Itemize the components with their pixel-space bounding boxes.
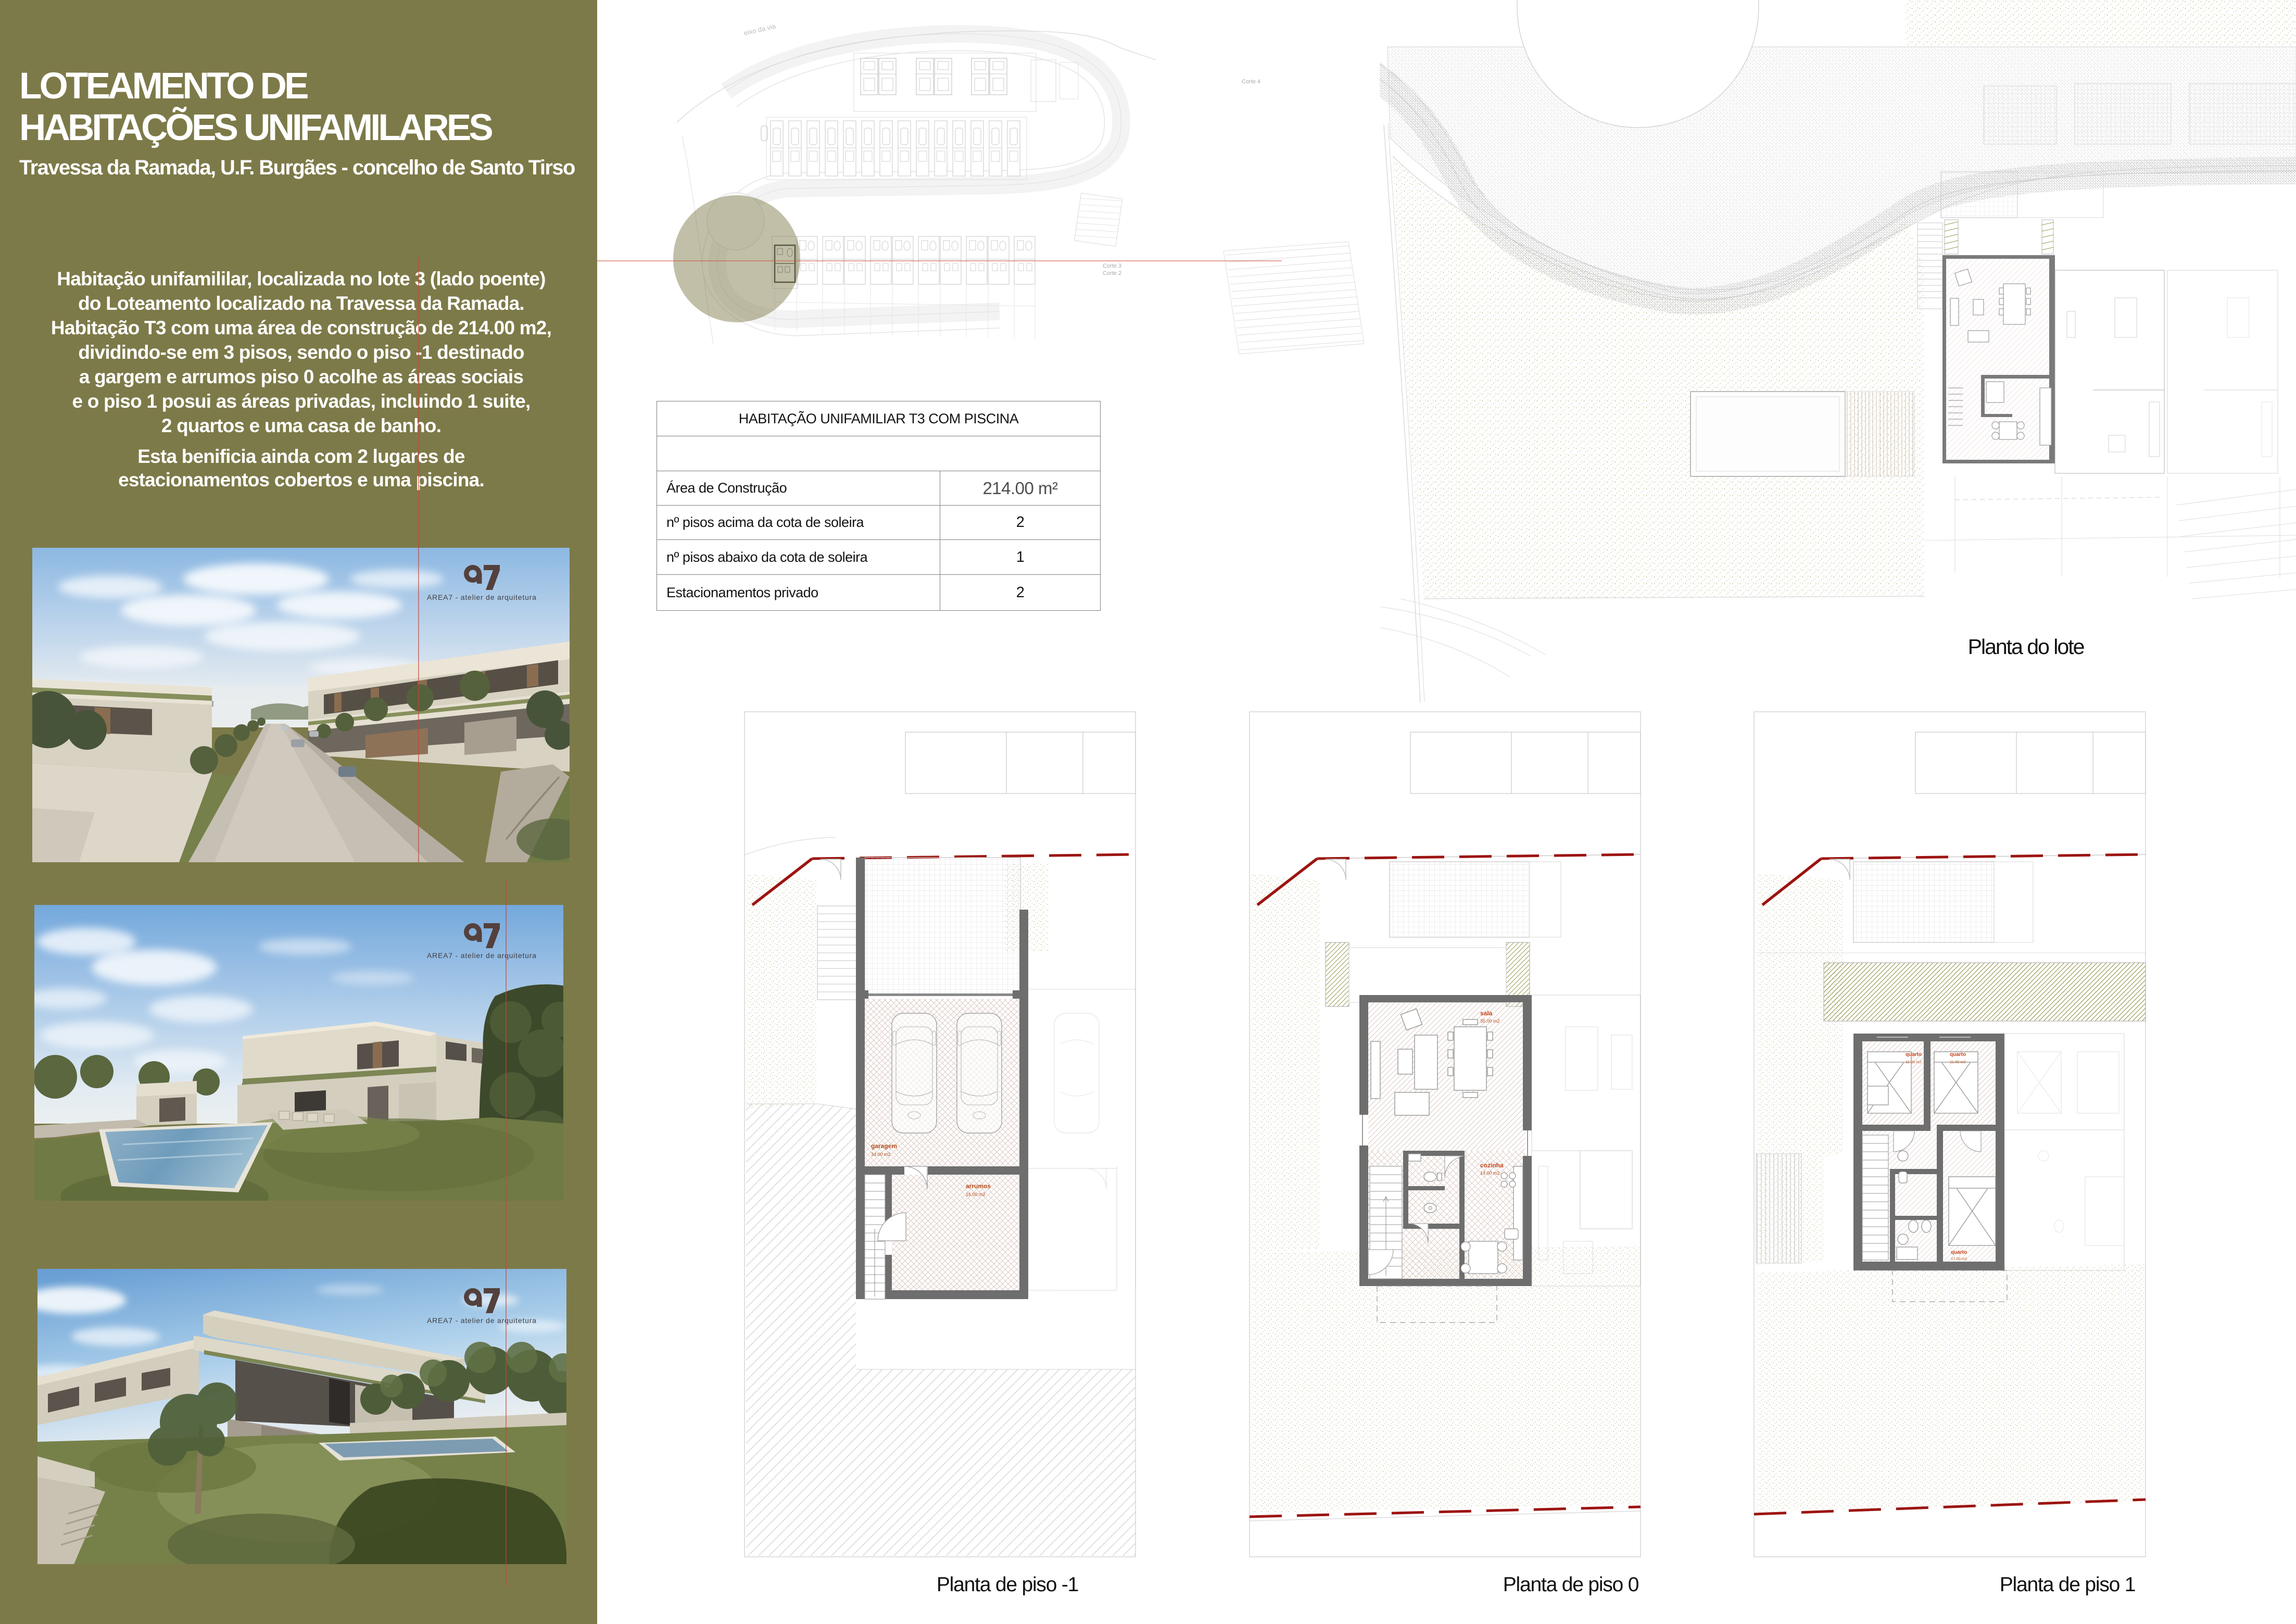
svg-text:17.00 m2: 17.00 m2 [1951,1256,1967,1261]
svg-text:34.00 m2: 34.00 m2 [871,1152,891,1157]
svg-text:11.00 m2: 11.00 m2 [1950,1060,1966,1064]
svg-text:Corte 4: Corte 4 [1242,79,1260,85]
svg-text:11.00 m2: 11.00 m2 [1906,1060,1922,1064]
svg-text:eixo da via: eixo da via [743,22,777,37]
svg-text:Corte 2: Corte 2 [1103,270,1121,276]
svg-text:14.00 m2: 14.00 m2 [1480,1170,1500,1176]
svg-text:arrumos: arrumos [966,1182,991,1190]
svg-text:16.00 m2: 16.00 m2 [966,1192,986,1197]
svg-text:quarto: quarto [1950,1052,1966,1058]
svg-text:AREA7 - atelier de arquitetura: AREA7 - atelier de arquitetura [427,593,537,601]
svg-text:Corte 3: Corte 3 [1103,263,1121,269]
svg-text:cozinha: cozinha [1480,1162,1504,1169]
svg-text:quarto: quarto [1906,1052,1922,1058]
svg-text:AREA7 - atelier de arquitetura: AREA7 - atelier de arquitetura [427,1316,537,1325]
svg-text:garagem: garagem [871,1142,897,1150]
svg-text:35.00 m2: 35.00 m2 [1480,1018,1500,1024]
svg-text:sala: sala [1480,1010,1493,1017]
svg-text:quarto: quarto [1951,1250,1967,1255]
svg-text:AREA7 - atelier de arquitetura: AREA7 - atelier de arquitetura [427,951,537,960]
